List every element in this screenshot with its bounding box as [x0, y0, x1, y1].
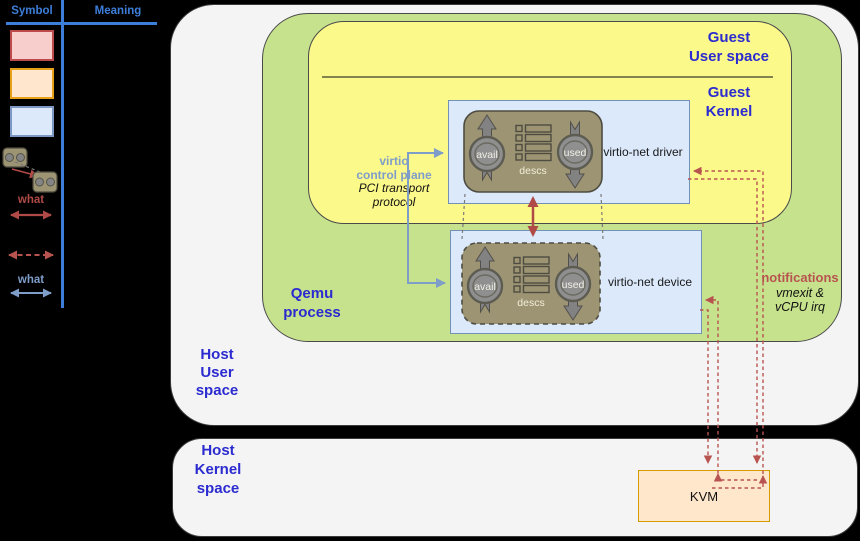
legend-swatch-pink	[10, 30, 54, 61]
device-vring: avail descs used	[461, 242, 601, 325]
host-user-space-label: HostUserspace	[157, 346, 277, 400]
guest-user-kernel-divider	[322, 76, 773, 78]
driver-used-label: used	[564, 147, 587, 159]
device-used-label: used	[562, 279, 585, 291]
host-kernel-space-label: HostKernelspace	[158, 441, 278, 498]
legend-header-underline	[6, 22, 157, 25]
legend-swatch-orange	[10, 68, 54, 99]
virtio-net-driver-box: avail descs used virtio-net driver	[448, 100, 690, 204]
legend-header-symbol: Symbol	[6, 5, 58, 17]
device-avail-label: avail	[474, 281, 496, 293]
kvm-box: KVM	[638, 470, 770, 522]
virtio-net-device-label: virtio-net device	[603, 231, 697, 333]
driver-descs-label: descs	[519, 165, 546, 177]
virtio-control-plane-annotation: virtio control plane PCI transport proto…	[334, 155, 454, 209]
legend: Symbol Meaning	[0, 0, 165, 320]
diagram-canvas: Symbol Meaning	[0, 0, 860, 541]
virtio-net-device-box: avail descs used virtio-net device	[450, 230, 702, 334]
legend-label-blue-what: what	[6, 274, 56, 286]
legend-label-red-what: what	[6, 194, 56, 206]
guest-user-space-label: GuestUser space	[664, 28, 794, 66]
kvm-label: KVM	[690, 489, 718, 504]
vring-pair-icon	[3, 148, 57, 192]
notifications-annotation: notifications vmexit & vCPU irq	[758, 271, 842, 315]
qemu-process-label: Qemuprocess	[252, 284, 372, 322]
device-descs-label: descs	[517, 297, 544, 309]
legend-header-meaning: Meaning	[88, 5, 148, 17]
guest-kernel-label: GuestKernel	[664, 83, 794, 121]
driver-avail-label: avail	[476, 149, 498, 161]
legend-swatch-blue	[10, 106, 54, 137]
driver-vring: avail descs used	[463, 110, 603, 193]
